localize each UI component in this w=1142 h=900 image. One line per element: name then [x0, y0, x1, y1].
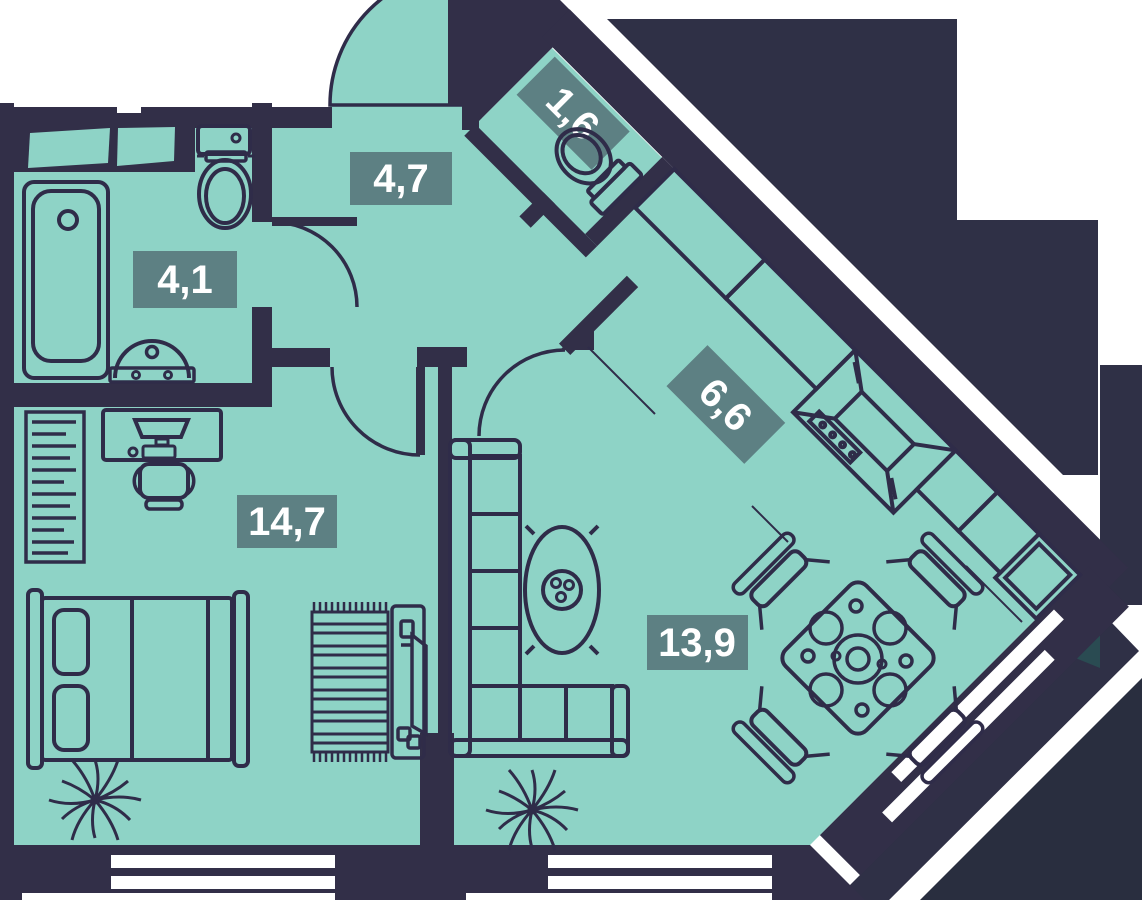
- room-area-label-bedroom: 14,7: [248, 500, 326, 544]
- room-area-label-hallway: 4,7: [373, 157, 429, 201]
- window-living-sill: [466, 893, 772, 900]
- window-bedroom-sill: [22, 893, 335, 900]
- rug-fringe-top: [314, 602, 386, 612]
- bathroom-door-leaf: [272, 217, 357, 226]
- window-bedroom-pane1: [111, 855, 335, 868]
- floor-plan-canvas: 1,6: [0, 0, 1142, 900]
- wall-left: [0, 103, 14, 900]
- wall-bathroom-bottom: [0, 383, 272, 407]
- wall-notch: [117, 107, 141, 113]
- room-area-label-living: 13,9: [658, 621, 736, 665]
- wall-bottom: [0, 845, 865, 900]
- floor-plan-page: 1,6: [0, 0, 1142, 900]
- bedroom-door-leaf: [416, 367, 425, 455]
- bathroom-niche-1: [28, 128, 110, 168]
- window-living-pane1: [548, 855, 772, 868]
- wall-top-left: [0, 107, 332, 128]
- bathroom-niche-2: [117, 127, 175, 166]
- wall-bathroom-right-upper: [252, 103, 272, 222]
- rug-fringe-bottom: [314, 752, 386, 762]
- entry-door-leaf: [448, 0, 464, 105]
- room-area-label-bathroom: 4,1: [157, 258, 213, 302]
- window-bedroom-pane2: [111, 876, 335, 889]
- window-living-pane2: [548, 876, 772, 889]
- wall-hall-stub: [262, 348, 330, 367]
